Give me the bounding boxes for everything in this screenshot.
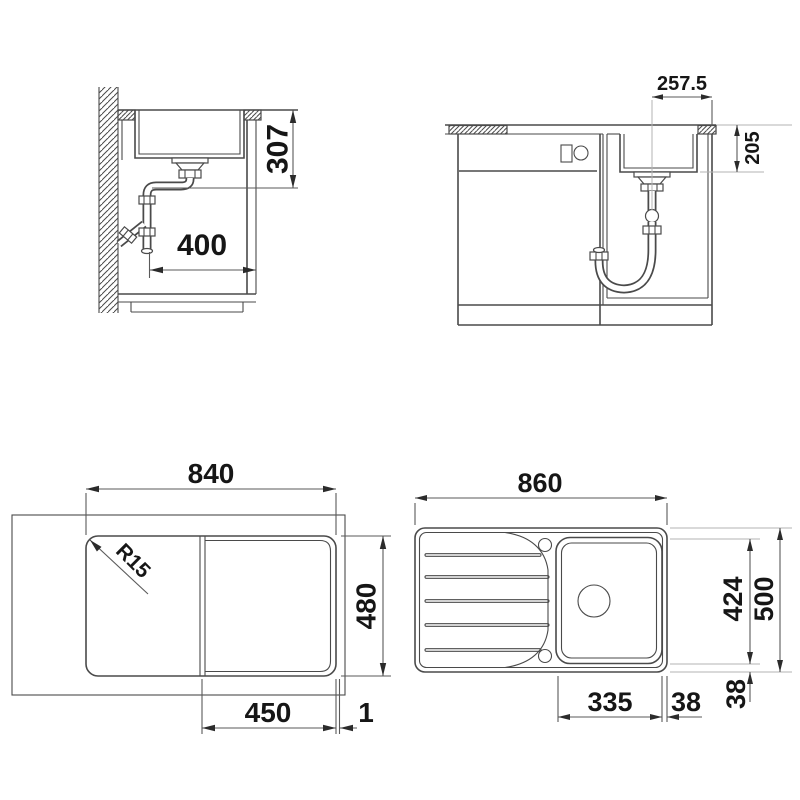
bowl-outline	[556, 538, 662, 664]
countertop-panel	[12, 515, 345, 695]
dim-label-1: 1	[358, 697, 374, 728]
sink-bowl-inner	[139, 110, 240, 154]
dimension-335: 335	[558, 676, 667, 722]
tap-hole-bottom	[539, 650, 552, 663]
bowl-inner-outline	[562, 543, 657, 658]
dimension-840: 840	[86, 458, 336, 535]
cutout-plan-view: R15 840 480 450	[12, 458, 391, 734]
dim-label-205: 205	[742, 131, 764, 164]
dim-label-r15: R15	[111, 539, 155, 583]
product-plan-view: 860 424 500 38	[415, 468, 792, 722]
dim-label-38-front: 38	[721, 679, 751, 709]
dimension-480: 480	[341, 536, 391, 676]
dim-label-424: 424	[718, 576, 748, 621]
countertop-front	[445, 125, 792, 134]
dimension-450: 450	[202, 679, 340, 734]
sink-cabinet-front	[458, 134, 712, 325]
drainboard-ridges	[425, 554, 549, 652]
dim-label-860: 860	[517, 468, 562, 498]
dim-label-335: 335	[587, 687, 632, 717]
radius-callout: R15	[90, 539, 155, 594]
dim-label-840: 840	[188, 458, 235, 489]
control-square-icon	[561, 145, 572, 162]
bowl-front-section	[620, 134, 697, 172]
dimension-424: 424	[718, 539, 753, 664]
dimension-500: 500	[749, 528, 783, 672]
dim-label-480: 480	[351, 583, 382, 630]
control-knob-icon	[574, 146, 588, 160]
side-section-view: 307 400	[99, 87, 298, 313]
wall-hatch	[99, 87, 118, 313]
sink-bowl-section	[135, 110, 244, 158]
dimension-1: 1	[340, 697, 374, 731]
dim-label-450: 450	[245, 697, 292, 728]
drain-hole	[578, 585, 610, 617]
dimension-38-front: 38	[721, 672, 753, 709]
dimension-860: 860	[415, 468, 667, 525]
drain-strainer	[172, 158, 208, 178]
front-section-view: 257.5 205	[445, 73, 792, 325]
tap-hole-top	[539, 539, 552, 552]
dim-label-38-edge: 38	[671, 687, 701, 717]
cutout-divider	[200, 536, 205, 676]
dim-label-400: 400	[177, 229, 227, 262]
sink-installation-drawing: 307 400	[0, 0, 800, 800]
dimension-400: 400	[150, 229, 257, 278]
dishwasher-front	[458, 134, 600, 325]
technical-drawing-page: 307 400	[0, 0, 800, 800]
right-section-inset	[205, 541, 331, 672]
dimension-307: 307	[152, 110, 298, 188]
bowl-front-inner	[624, 134, 693, 168]
countertop-section	[118, 110, 298, 120]
dim-label-307: 307	[262, 124, 295, 174]
dim-label-257-5: 257.5	[657, 73, 707, 95]
dim-label-500: 500	[749, 576, 779, 621]
dimension-38-edge: 38	[667, 687, 702, 720]
